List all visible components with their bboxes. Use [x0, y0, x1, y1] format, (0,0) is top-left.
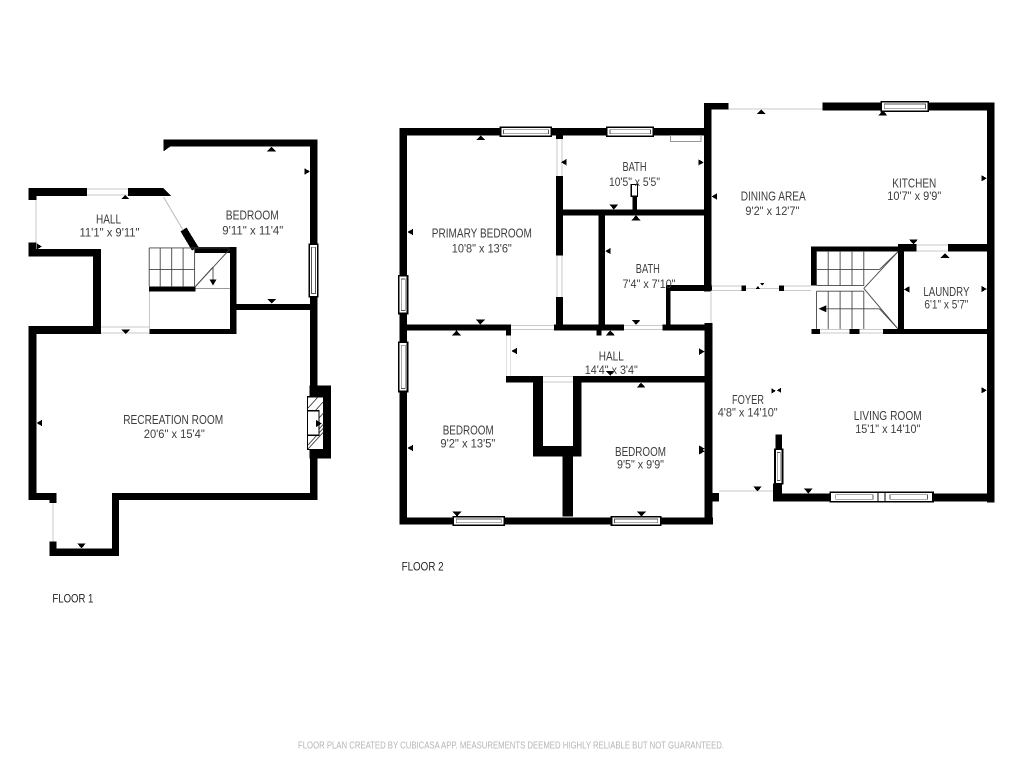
svg-text:9'2" x 12'7": 9'2" x 12'7" — [745, 204, 799, 218]
svg-text:KITCHEN: KITCHEN — [892, 175, 936, 190]
svg-text:15'1" x 14'10": 15'1" x 14'10" — [855, 422, 920, 436]
svg-text:6'1" x 5'7": 6'1" x 5'7" — [924, 297, 968, 311]
svg-text:PRIMARY BEDROOM: PRIMARY BEDROOM — [432, 225, 532, 240]
svg-text:HALL: HALL — [599, 348, 624, 363]
svg-text:9'11" x 11'4": 9'11" x 11'4" — [222, 224, 283, 238]
svg-text:11'1" x 9'11": 11'1" x 9'11" — [80, 225, 140, 239]
svg-text:DINING AREA: DINING AREA — [741, 189, 806, 204]
svg-text:9'5" x 9'9": 9'5" x 9'9" — [617, 458, 664, 472]
svg-text:FLOOR PLAN CREATED BY CUBICASA: FLOOR PLAN CREATED BY CUBICASA APP. MEAS… — [298, 740, 724, 752]
svg-text:14'4" x 3'4": 14'4" x 3'4" — [585, 363, 638, 377]
svg-text:BATH: BATH — [623, 159, 647, 174]
svg-text:FLOOR 1: FLOOR 1 — [52, 593, 93, 606]
svg-text:9'2" x 13'5": 9'2" x 13'5" — [440, 437, 495, 451]
svg-text:7'4" x 7'10": 7'4" x 7'10" — [623, 277, 676, 291]
svg-text:20'6" x 15'4": 20'6" x 15'4" — [144, 427, 205, 441]
svg-text:BATH: BATH — [636, 261, 660, 276]
svg-text:HALL: HALL — [96, 211, 121, 226]
svg-text:BEDROOM: BEDROOM — [615, 444, 666, 459]
svg-text:10'8" x 13'6": 10'8" x 13'6" — [452, 241, 512, 255]
svg-text:LIVING ROOM: LIVING ROOM — [854, 408, 922, 423]
svg-text:10'5" x 5'5": 10'5" x 5'5" — [609, 175, 660, 189]
svg-text:RECREATION ROOM: RECREATION ROOM — [123, 412, 223, 427]
svg-text:BEDROOM: BEDROOM — [443, 423, 494, 438]
svg-text:10'7" x 9'9": 10'7" x 9'9" — [887, 189, 941, 203]
svg-text:BEDROOM: BEDROOM — [226, 207, 279, 222]
svg-text:4'8" x 14'10": 4'8" x 14'10" — [718, 406, 778, 420]
svg-text:FLOOR 2: FLOOR 2 — [402, 561, 444, 574]
